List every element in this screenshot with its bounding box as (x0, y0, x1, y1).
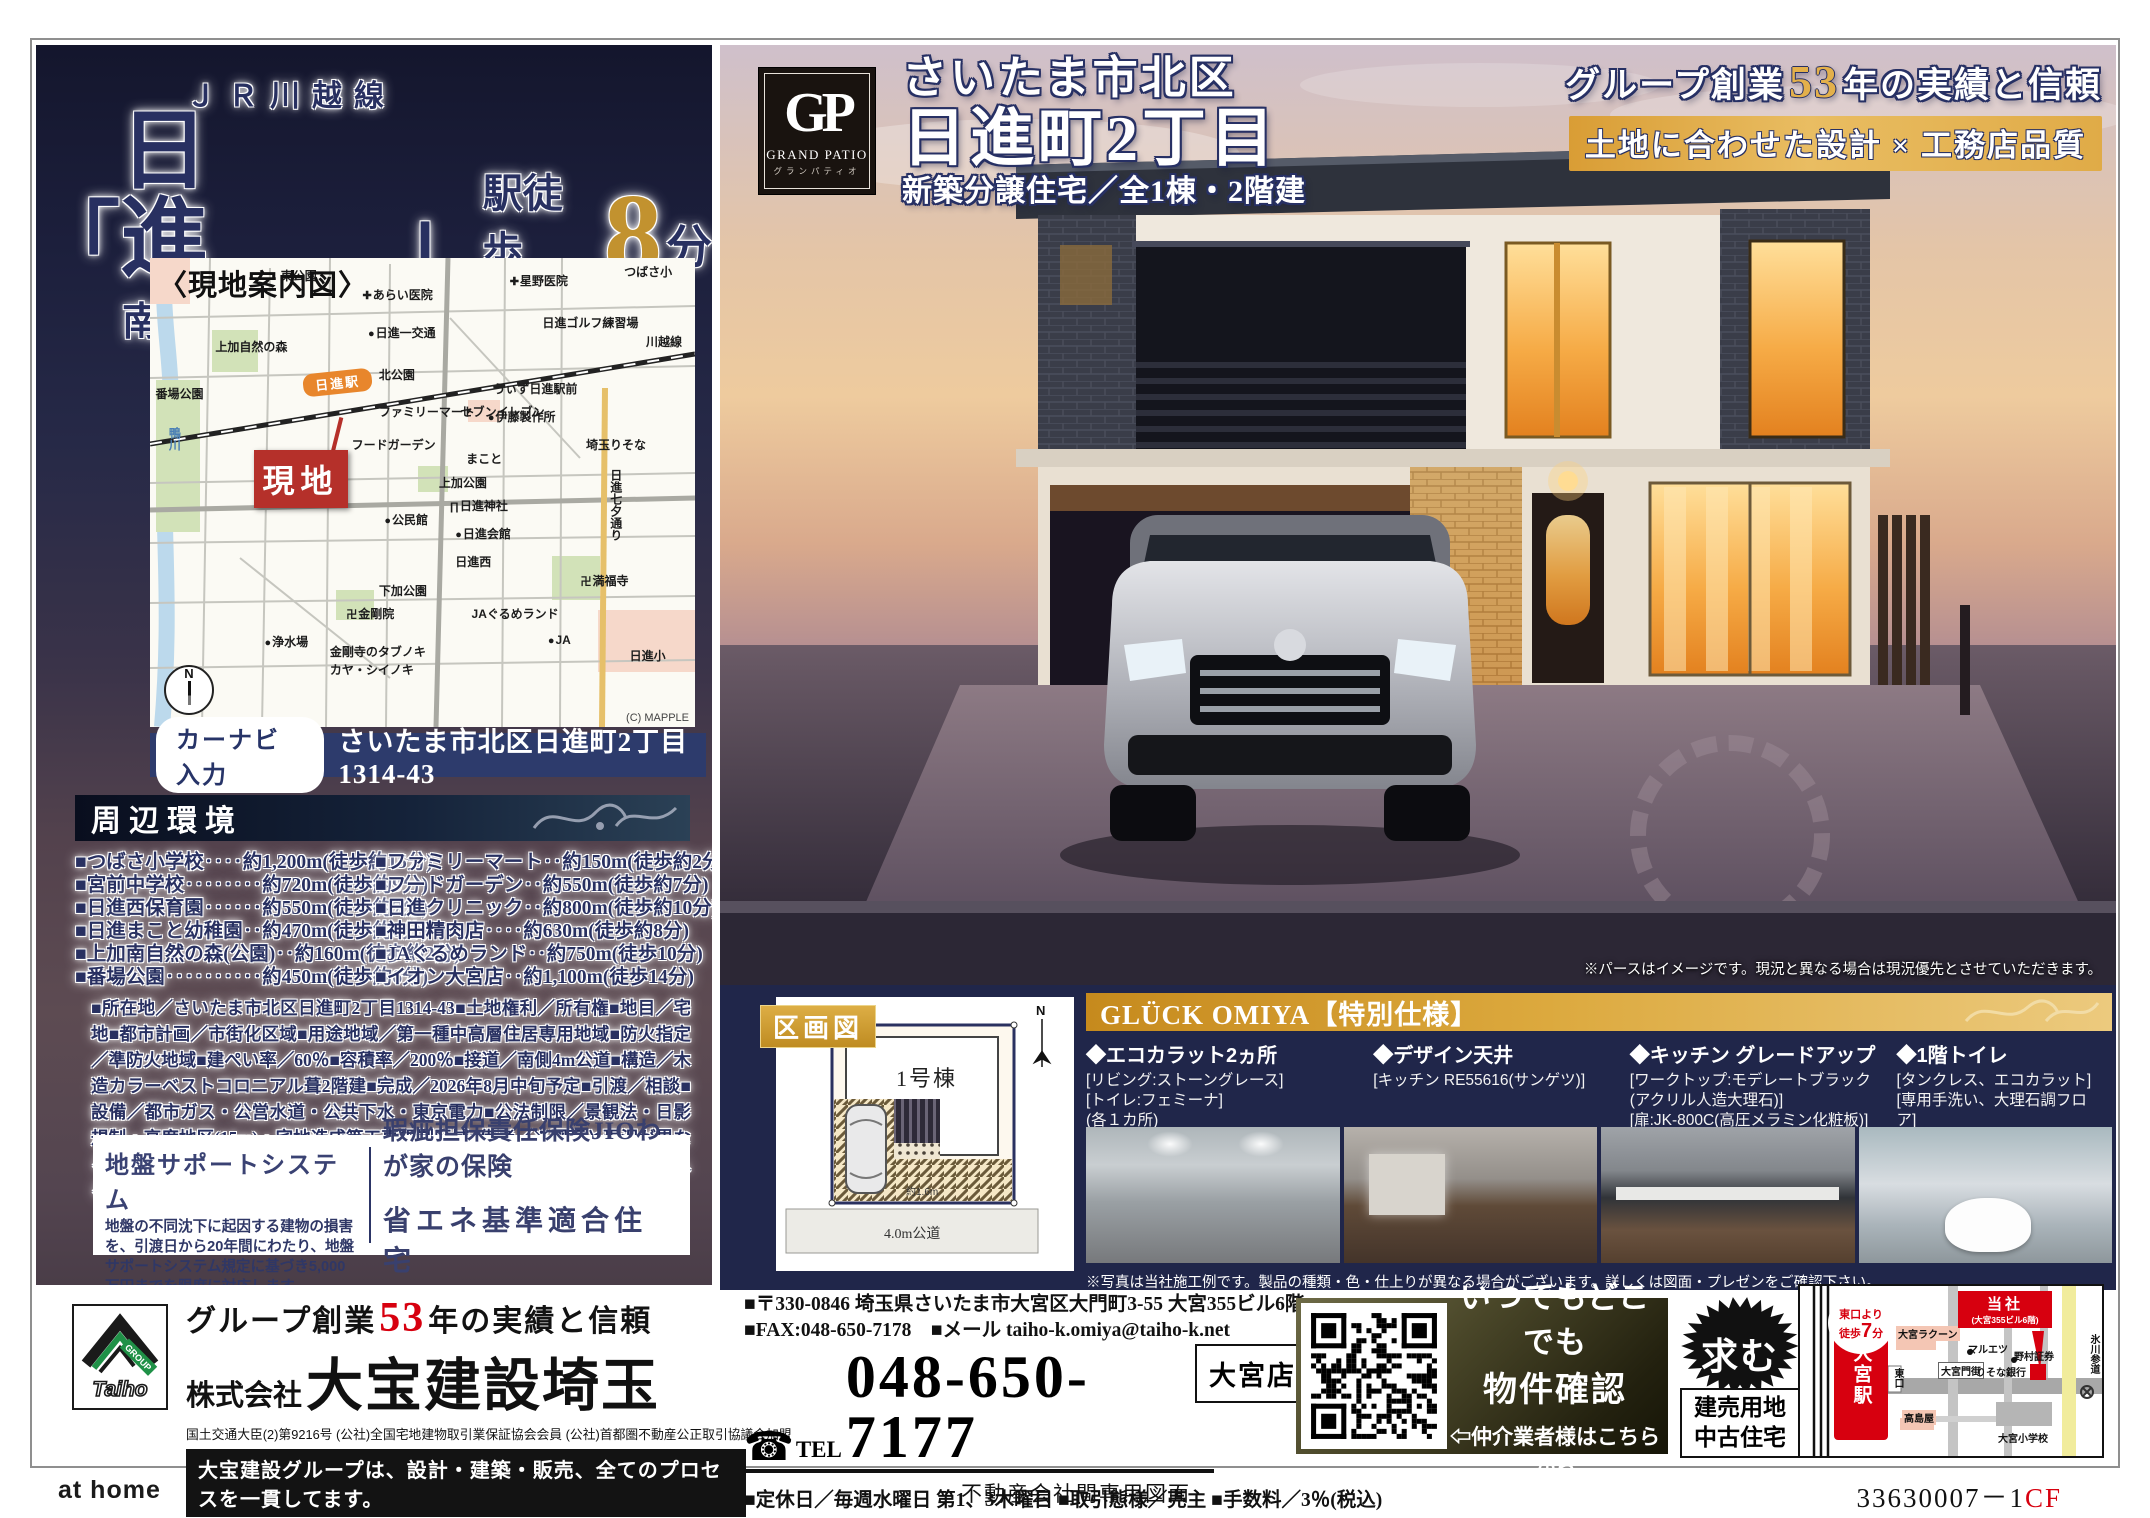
contact-fax-mail: ■FAX:048-650-7178 ■メール taiho-k.omiya@tai… (744, 1318, 1310, 1344)
map-place-label: カヤ・シイノキ (330, 661, 414, 678)
qr-line2: 物件確認 (1447, 1362, 1663, 1411)
map-place-label: ✚あらい医院 (363, 286, 433, 303)
dot-icon: ● (548, 635, 555, 647)
ground-support-title: 地盤サポートシステム (105, 1145, 357, 1215)
contact-address: ■〒330-0846 埼玉県さいたま市大宮区大門町3-55 大宮355ビル6階 (744, 1292, 1310, 1318)
flourish-icon (1962, 995, 2102, 1029)
car-illustration (1060, 515, 1520, 885)
spec-item-line: [ワークトップ:モデレートブラック (1630, 1071, 1887, 1091)
guarantee-boxes: 地盤サポートシステム 地盤の不同沈下に起因する建物の損害を、引渡日から20年間に… (93, 1135, 690, 1255)
spec-columns: ◆エコカラット2ヵ所[リビング:ストーングレース][トイレ:フェミーナ](各１カ… (1086, 1039, 2112, 1125)
map-place-name: つばさ小 (624, 265, 672, 279)
mini-map-place-label: 東口 (1890, 1368, 1905, 1388)
map-place-label: JAぐるめランド (472, 605, 559, 622)
spec-item-line: [タンクレス、エコカラット] (1897, 1071, 2102, 1091)
surroundings-list: ■つばさ小学校‥‥約1,200m(徒歩約15分)■宮前中学校‥‥‥‥約720m(… (75, 851, 691, 989)
insurance-box: 瑕疵担保責任保険JIOわが家の保険 省エネ基準適合住宅 (383, 1145, 678, 1245)
map-place-name: 満福寺 (593, 574, 629, 588)
map-place-label: 上加公園 (439, 474, 487, 491)
footer-code: 33630007－1CF (1856, 1476, 2062, 1515)
map-place-name: 日進一交通 (376, 326, 436, 340)
company-license: 国土交通大臣(2)第9216号 (公社)全国宅地建物取引業保証協会会員 (公社)… (186, 1424, 746, 1443)
tagline-pre: グループ創業 (1565, 66, 1785, 105)
surroundings-item: ■ファミリーマート‥約150m(徒歩約2分) (375, 851, 691, 874)
mini-map-place-label: 大宮ラクーン (1896, 1326, 1960, 1341)
map-place-name: フードガーデン (352, 438, 436, 452)
map-place-name: 公民館 (392, 513, 428, 527)
dot-icon: ● (384, 515, 391, 527)
wanted-label: 求む (1678, 1326, 1802, 1380)
interior-photo-kitchen (1601, 1127, 1855, 1263)
surroundings-title: 周辺環境 (75, 796, 243, 840)
map-place-label: まこと (466, 450, 502, 467)
company-band: GROUP Taiho グループ創業53年の実績と信頼 株式会社 大宝建設埼玉 … (36, 1300, 2116, 1460)
spec-item-line: [専用手洗い、大理石調フロア] (1897, 1091, 2102, 1131)
tel-label: TEL (794, 1437, 846, 1467)
dot-icon: ● (264, 637, 271, 649)
company-tagline-pre: グループ創業 (186, 1305, 376, 1338)
spec-item: ◆キッチン グレードアップ[ワークトップ:モデレートブラック(アクリル人造大理石… (1630, 1039, 1897, 1125)
map-place-label: 番場公園 (155, 385, 203, 402)
render-disclaimer: ※パースはイメージです。現況と異なる場合は現況優先とさせていただきます。 (1584, 958, 2102, 979)
group-history-line: グループ創業53年の実績と信頼 (1565, 55, 2102, 108)
walk-mid: 徒歩 (1839, 1328, 1861, 1340)
surroundings-item: ■フードガーデン‥約550m(徒歩約7分) (375, 874, 691, 897)
surroundings-left-column: ■つばさ小学校‥‥約1,200m(徒歩約15分)■宮前中学校‥‥‥‥約720m(… (75, 851, 375, 989)
interior-photo-living (1086, 1127, 1340, 1263)
quote-open: 「 (36, 201, 120, 285)
spec-item-line: [トイレ:フェミーナ] (1086, 1091, 1363, 1111)
energy-standard-line: 省エネ基準適合住宅 (383, 1199, 678, 1279)
ground-support-body: 地盤の不同沈下に起因する建物の損害を、引渡日から20年間にわたり、地盤サポートシ… (105, 1217, 357, 1285)
map-place-name: JA (556, 633, 571, 647)
company-prefix: 株式会社 (186, 1380, 302, 1412)
map-place-label: ●JA (548, 633, 571, 647)
car-navi-label: カーナビ入力 (156, 717, 324, 793)
map-place-label: 下加公園 (379, 582, 427, 599)
spec-item-title: ◆1階トイレ (1897, 1039, 2102, 1068)
mini-map-place-label: マルエツ (1968, 1341, 2008, 1356)
qr-line3: ⇦仲介業者様はこちらから (1447, 1421, 1663, 1481)
hero-location: さいたま市北区 日進町2丁目 新築分譲住宅／全1棟・2階建 (902, 53, 1306, 209)
car-navi-row: カーナビ入力 さいたま市北区日進町2丁目1314-43 (150, 733, 706, 777)
spec-item-title: ◆エコカラット2ヵ所 (1086, 1039, 1363, 1068)
map-place-name: 上加公園 (439, 476, 487, 490)
office-mini-map: 大宮駅 東口より 徒歩7分 当社 (大宮355ビル6階) 大宮ラクーンマルエツ野… (1798, 1284, 2104, 1458)
map-place-label: 日進ゴルフ練習場 (542, 314, 638, 331)
surroundings-item: ■日進クリニック‥約800m(徒歩約10分) (375, 897, 691, 920)
flourish-icon (530, 798, 680, 838)
surroundings-item: ■神田精肉店‥‥約630m(徒歩約8分) (375, 920, 691, 943)
phone-row: ☎ TEL 048-650-7177 (744, 1347, 1214, 1473)
spec-item-title: ◆デザイン天井 (1373, 1039, 1620, 1068)
map-place-name: 下加公園 (379, 584, 427, 598)
map-place-name: 日進七夕通り (609, 469, 623, 541)
mini-map-place-label: 氷川参道 (2086, 1334, 2101, 1374)
map-place-label: ●公民館 (384, 511, 428, 528)
surroundings-item: ■日進西保育園‥‥‥約550m(徒歩約7分) (75, 897, 375, 920)
map-place-name: 星野医院 (520, 274, 568, 288)
map-place-label: セブンイレブン (461, 403, 545, 420)
area-map: 〈現地案内図〉 東公園✚あらい医院✚星野医院つばさ小日進ゴルフ練習場●日進一交通… (150, 258, 695, 727)
hero-property-type: 新築分譲住宅／全1棟・2階建 (902, 175, 1306, 209)
map-place-label: ●浄水場 (264, 633, 308, 650)
company-tagline: グループ創業53年の実績と信頼 (186, 1294, 746, 1342)
map-place-name: 日進西 (455, 555, 491, 569)
compass-icon: N (164, 665, 214, 715)
hero-render: GP GRAND PATIO グランパティオ さいたま市北区 日進町2丁目 新築… (720, 45, 2116, 985)
qr-text: いつでもどこでも 物件確認 ⇦仲介業者様はこちらから (1447, 1272, 1663, 1481)
map-place-label: フードガーデン (352, 436, 436, 453)
plot-building-label: 1号棟 (896, 1061, 957, 1093)
taiho-logo: GROUP Taiho (72, 1304, 168, 1410)
map-place-label: うぃず日進駅前 (493, 380, 577, 397)
map-place-label: 金剛寺のタブノキ (330, 643, 426, 660)
temple-icon: 卍 (346, 609, 357, 621)
company-tagline-post: 年の実績と信頼 (428, 1305, 652, 1338)
tagline-post: 年の実績と信頼 (1843, 66, 2102, 105)
map-place-name: カヤ・シイノキ (330, 663, 414, 677)
svg-text:Taiho: Taiho (92, 1378, 147, 1401)
map-place-name: 日進会館 (463, 527, 511, 541)
vertical-divider (369, 1147, 371, 1243)
plot-road-label: 4.0m公道 (884, 1223, 940, 1243)
wanted-line1: 建売用地 (1682, 1393, 1798, 1423)
interior-photo-toilet (1859, 1127, 2113, 1263)
map-place-label: 卍金剛院 (346, 605, 394, 622)
lower-panel: 1号棟 約1.6m 4.0m公道 N 区画図 GLÜCK OMIYA【特別仕様】… (720, 985, 2116, 1290)
spec-item: ◆エコカラット2ヵ所[リビング:ストーングレース][トイレ:フェミーナ](各１カ… (1086, 1039, 1373, 1125)
map-place-label: つばさ小 (624, 263, 672, 280)
car-navi-address: さいたま市北区日進町2丁目1314-43 (338, 720, 706, 790)
hero-right-tagline: グループ創業53年の実績と信頼 土地に合わせた設計 × 工務店品質 (1565, 55, 2102, 171)
map-place-name: まこと (466, 452, 502, 466)
map-place-name: 上加自然の森 (215, 340, 287, 354)
our-office-marker: 当社 (大宮355ビル6階) (1958, 1291, 2052, 1328)
map-place-name: うぃず日進駅前 (493, 382, 577, 396)
branch-name-box: 大宮店 (1195, 1344, 1310, 1403)
footer-code-number: 33630007－1 (1856, 1483, 2025, 1513)
mini-map-place-label: 高島屋 (1902, 1410, 1936, 1425)
spec-item-title: ◆キッチン グレードアップ (1630, 1039, 1887, 1068)
spec-item: ◆デザイン天井[キッチン RE55616(サンゲツ)] (1373, 1039, 1630, 1125)
phone-number: 048-650-7177 (846, 1347, 1214, 1467)
our-office-sub: (大宮355ビル6階) (1958, 1314, 2052, 1326)
tagline-years: 53 (1785, 56, 1843, 107)
company-name: 大宝建設埼玉 (306, 1355, 660, 1418)
map-place-label: ●日進会館 (455, 525, 511, 542)
spec-item-line: [キッチン RE55616(サンゲツ)] (1373, 1071, 1620, 1091)
dot-icon: ● (368, 328, 375, 340)
design-quality-banner: 土地に合わせた設計 × 工務店品質 (1569, 116, 2102, 171)
grand-patio-logo: GP GRAND PATIO グランパティオ (758, 67, 876, 195)
spec-item-line: (アクリル人造大理石)] (1630, 1091, 1887, 1111)
map-place-name: 番場公園 (155, 387, 203, 401)
surroundings-header: 周辺環境 (75, 795, 690, 841)
footer-center-text: 不動産会社間専用図面 (36, 1478, 2116, 1508)
surroundings-item: ■宮前中学校‥‥‥‥約720m(徒歩約9分) (75, 874, 375, 897)
compass-n: N (184, 667, 193, 681)
hospital-icon: ✚ (510, 276, 519, 288)
dot-icon: ● (455, 529, 462, 541)
hero-city: さいたま市北区 (902, 53, 1306, 103)
walk-line: 徒歩7分 (1839, 1322, 1883, 1341)
map-place-name: 日進神社 (460, 499, 508, 513)
map-title: 〈現地案内図〉 (158, 262, 368, 304)
surroundings-item: ■日進まこと幼稚園‥約470m(徒歩約6分) (75, 920, 375, 943)
ground-support-box: 地盤サポートシステム 地盤の不同沈下に起因する建物の損害を、引渡日から20年間に… (105, 1145, 357, 1245)
spec-item-line: [リビング:ストーングレース] (1086, 1071, 1363, 1091)
qr-panel: いつでもどこでも 物件確認 ⇦仲介業者様はこちらから (1296, 1298, 1668, 1454)
map-place-name: JAぐるめランド (472, 607, 559, 621)
plot-compass-n: N (1036, 1003, 1045, 1018)
map-place-name: 日進小 (630, 649, 666, 663)
qr-line1: いつでもどこでも (1447, 1272, 1663, 1362)
insurance-line: 瑕疵担保責任保険JIOわが家の保険 (383, 1111, 678, 1183)
torii-icon: ∏ (450, 501, 459, 513)
special-specs-section: GLÜCK OMIYA【特別仕様】 ◆エコカラット2ヵ所[リビング:ストーングレ… (1086, 993, 2112, 1287)
hero-town: 日進町2丁目 (902, 103, 1306, 175)
surroundings-item: ■番場公園‥‥‥‥‥約450m(徒歩約6分) (75, 966, 375, 989)
walk-time-circle: 東口より 徒歩7分 (1828, 1292, 1894, 1354)
map-place-label: 卍満福寺 (581, 572, 629, 589)
map-place-label: ●日進一交通 (368, 324, 436, 341)
specs-header: GLÜCK OMIYA【特別仕様】 (1086, 993, 2112, 1031)
mini-map-place-label: 野村証券 (2014, 1348, 2054, 1363)
gp-logo-name: GRAND PATIO (766, 147, 868, 163)
map-place-name: 北公園 (379, 368, 415, 382)
map-place-name: 日進ゴルフ練習場 (542, 316, 638, 330)
walk-unit2: 分 (1872, 1328, 1883, 1340)
map-place-name: あらい医院 (373, 288, 433, 302)
plot-setback-label: 約1.6m (906, 1183, 938, 1198)
gp-logo-kana: グランパティオ (774, 165, 861, 177)
footer-code-suffix: CF (2025, 1483, 2062, 1513)
walk-num: 7 (1861, 1320, 1872, 1342)
map-place-label: 川越線 (646, 333, 682, 350)
spec-item: ◆1階トイレ[タンクレス、エコカラット][専用手洗い、大理石調フロア]※リビング… (1897, 1039, 2112, 1125)
map-place-name: 金剛寺のタブノキ (330, 645, 426, 659)
compass-needle (188, 681, 191, 705)
map-place-name: 鴨川 (167, 427, 181, 451)
map-place-label: 上加自然の森 (215, 338, 287, 355)
map-credit: (C) MAPPLE (626, 712, 689, 724)
surroundings-item: ■上加南自然の森(公園)‥約160m(徒歩約2分) (75, 943, 375, 966)
mini-map-place-label: 大宮小学校 (1998, 1430, 2048, 1445)
temple-icon: 卍 (581, 576, 592, 588)
map-place-label: 日進西 (455, 553, 491, 570)
left-info-panel: ＪＲ川越線 「 日 進 」 駅徒歩 8 分 南道路のため陽あたり良好 (36, 45, 712, 1285)
map-place-name: 金剛院 (358, 607, 394, 621)
company-name-row: 株式会社 大宝建設埼玉 (186, 1340, 746, 1422)
gp-monogram: GP (784, 85, 850, 141)
map-place-label: 日進小 (630, 647, 666, 664)
map-place-name: 浄水場 (272, 635, 308, 649)
footer-line: at home 不動産会社間専用図面 33630007－1CF (36, 1474, 2116, 1514)
surroundings-item: ■イオン大宮店‥約1,100m(徒歩14分) (375, 966, 691, 989)
wanted-line2: 中古住宅 (1682, 1423, 1798, 1453)
plot-diagram-label: 区画図 (760, 1005, 876, 1048)
phone-icon: ☎ (744, 1427, 794, 1467)
map-place-label: 埼玉りそな (586, 436, 646, 453)
specs-title: GLÜCK OMIYA【特別仕様】 (1086, 993, 1478, 1032)
wanted-badge: 求む 建売用地 中古住宅 (1678, 1296, 1802, 1458)
map-place-label: ∏日進神社 (450, 497, 508, 514)
our-office-label: 当社 (1958, 1293, 2052, 1314)
map-place-name: 川越線 (646, 335, 682, 349)
company-tagline-years: 53 (376, 1295, 428, 1341)
map-place-label: 日進七夕通り (608, 469, 625, 541)
map-place-name: セブンイレブン (461, 405, 545, 419)
mini-map-place-label: りそな銀行 (1976, 1364, 2026, 1379)
interior-photo-room (1344, 1127, 1598, 1263)
site-marker: 現地 (254, 450, 348, 508)
map-place-name: 埼玉りそな (586, 438, 646, 452)
map-place-label: ✚星野医院 (510, 272, 568, 289)
map-place-label: 鴨川 (166, 427, 183, 451)
wanted-box: 建売用地 中古住宅 (1680, 1388, 1800, 1458)
qr-code (1301, 1303, 1447, 1449)
surroundings-item: ■つばさ小学校‥‥約1,200m(徒歩約15分) (75, 851, 375, 874)
surroundings-item: ■JAぐるめランド‥約750m(徒歩10分) (375, 943, 691, 966)
interior-photos (1086, 1127, 2112, 1263)
map-place-label: 北公園 (379, 366, 415, 383)
surroundings-right-column: ■ファミリーマート‥約150m(徒歩約2分)■フードガーデン‥約550m(徒歩約… (375, 851, 691, 989)
